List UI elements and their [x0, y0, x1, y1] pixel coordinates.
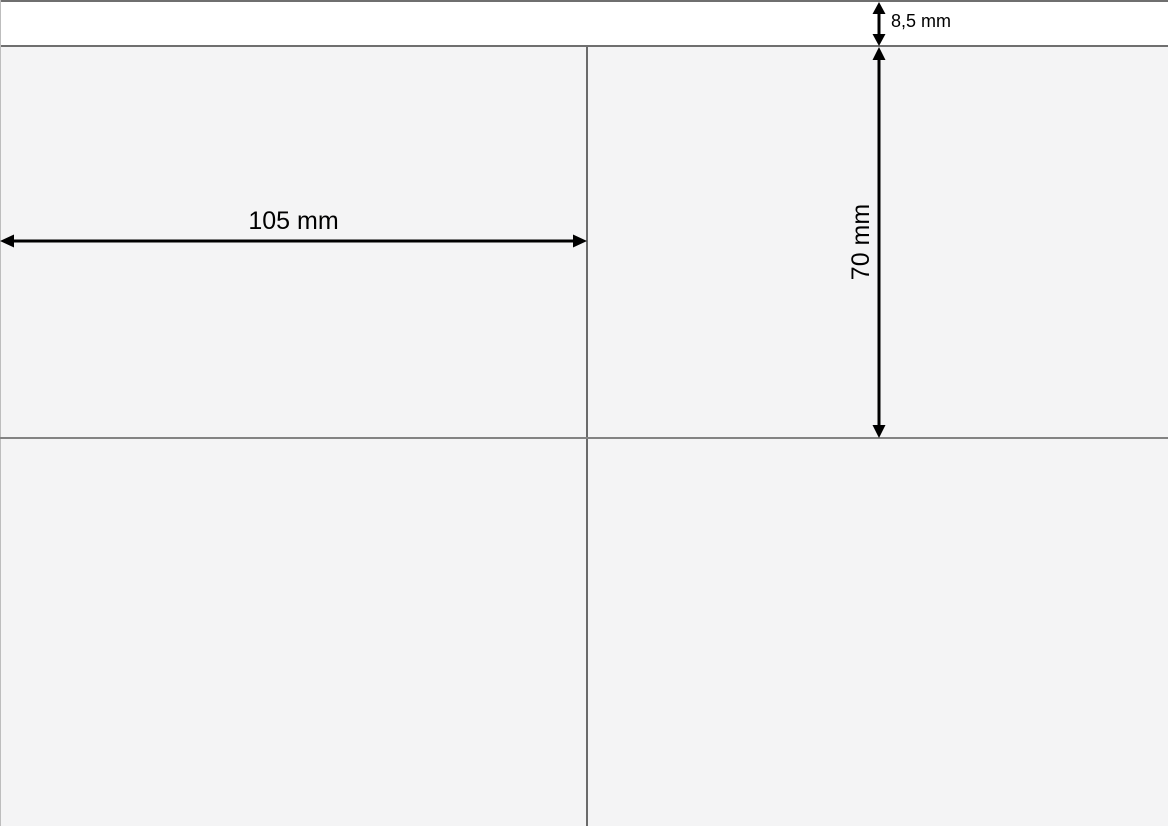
label-row-divider — [0, 437, 1168, 439]
label-height-dimension-text: 70 mm — [846, 204, 876, 280]
top-margin-strip — [0, 2, 1168, 45]
top-margin-dimension-arrow-icon — [871, 2, 887, 46]
top-margin-bottom-border — [0, 45, 1168, 47]
sheet-left-edge — [0, 0, 1, 826]
label-sheet-diagram: 105 mm 8,5 mm 70 mm — [0, 0, 1168, 826]
top-margin-dimension-text: 8,5 mm — [891, 11, 951, 32]
label-width-dimension-text: 105 mm — [0, 206, 587, 236]
